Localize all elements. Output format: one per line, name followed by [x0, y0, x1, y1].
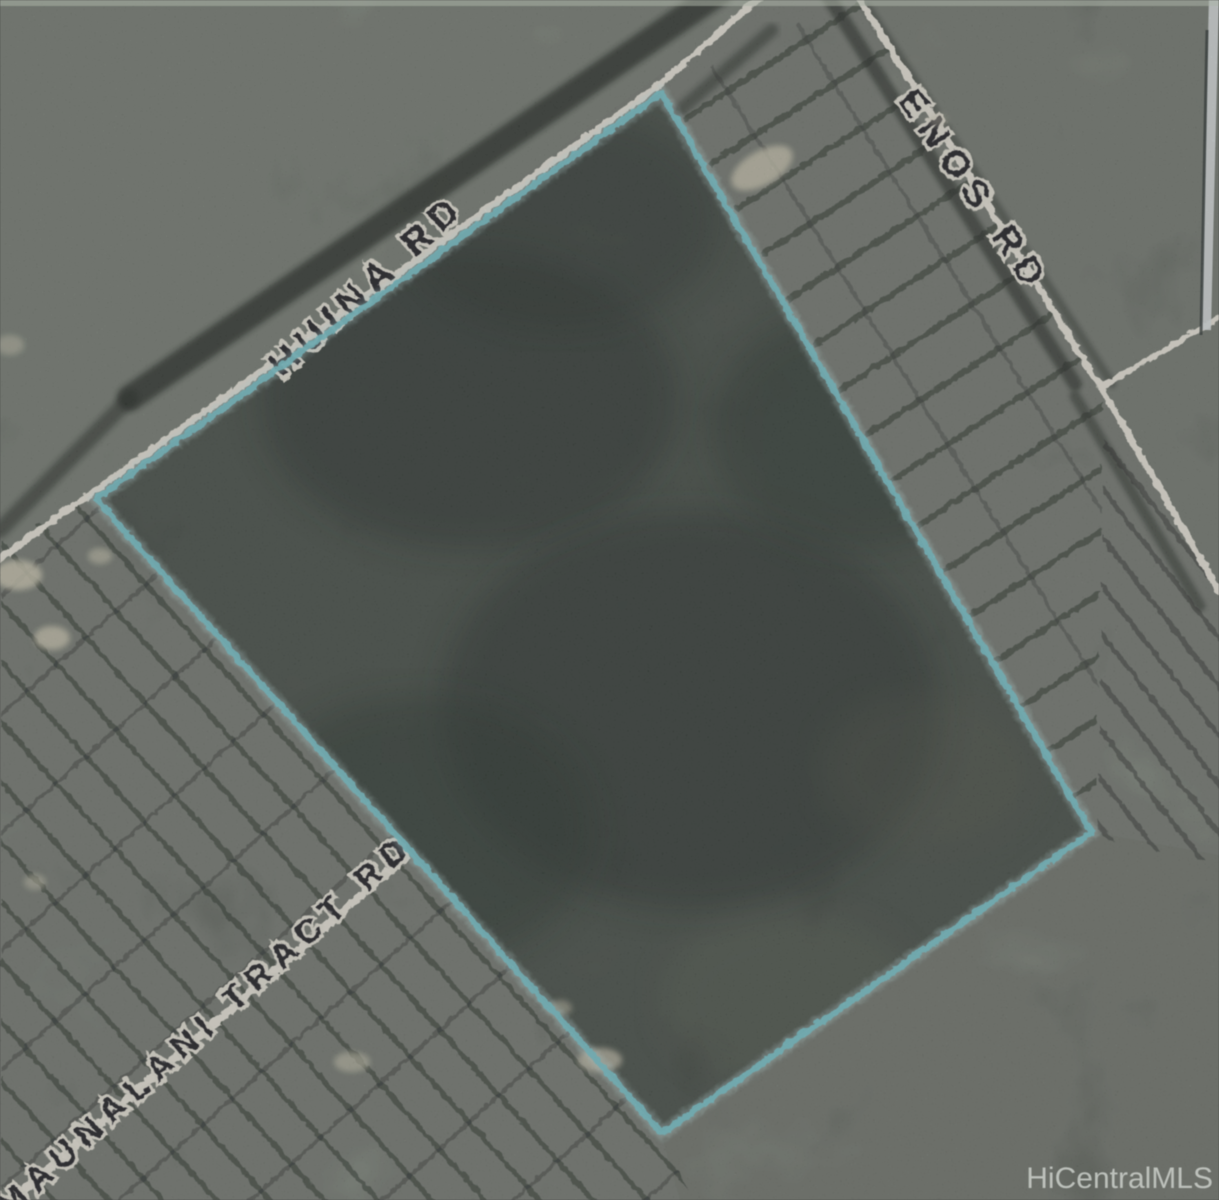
- aerial-map: HUINA RD ENOS RD MAUNALANI TRACT RD HiCe…: [0, 0, 1219, 1200]
- film-grain: [0, 0, 1219, 1200]
- aerial-map-image: HUINA RD ENOS RD MAUNALANI TRACT RD HiCe…: [0, 0, 1219, 1200]
- watermark: HiCentralMLS: [1026, 1162, 1213, 1195]
- grain-light: [0, 0, 1219, 1200]
- top-edge-light-strip: [0, 0, 1219, 6]
